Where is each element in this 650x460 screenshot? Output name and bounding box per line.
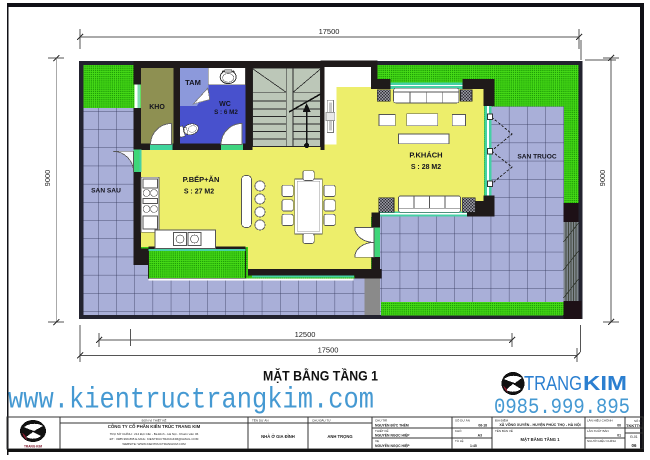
svg-text:NGUYỄN NGỌC HIỆP: NGUYỄN NGỌC HIỆP (375, 443, 410, 448)
svg-text:ĐT : 0985.999.895 E-MAIL: KI: ĐT : 0985.999.895 E-MAIL: KIENTRUCTRANGK… (110, 437, 199, 441)
svg-text:TRỤ SỞ CHÍNH : 214 Đợi Cấn - B: TRỤ SỞ CHÍNH : 214 Đợi Cấn - Ba Đình - H… (110, 431, 199, 436)
svg-text:S : 27 M2: S : 27 M2 (184, 189, 214, 196)
svg-text:TRANG KIM: TRANG KIM (24, 445, 42, 449)
svg-text:A3: A3 (478, 434, 482, 438)
svg-text:Đ-01: Đ-01 (630, 435, 637, 439)
svg-text:NGUYỄN ĐỨC THÊM: NGUYỄN ĐỨC THÊM (375, 423, 409, 428)
svg-text:TÊN DỰ ÁN: TÊN DỰ ÁN (252, 418, 269, 423)
svg-text:06-18: 06-18 (478, 424, 487, 428)
svg-text:P.BẾP+ĂN: P.BẾP+ĂN (183, 174, 220, 184)
svg-text:LẦN HIỆU CHỒNH: LẦN HIỆU CHỒNH (587, 418, 613, 423)
svg-text:VẸ: VẸ (375, 439, 379, 443)
svg-text:XÃ VÕNG XUYÊN - HUYỆN PHÚC THỌ: XÃ VÕNG XUYÊN - HUYỆN PHÚC THỌ - HÀ NỘI (499, 422, 580, 427)
svg-text:ĐỊA ĐIỂM: ĐỊA ĐIỂM (495, 418, 509, 423)
svg-text:KIM: KIM (583, 373, 627, 395)
svg-text:MẶT BẰNG TẦNG 1: MẶT BẰNG TẦNG 1 (263, 367, 378, 384)
svg-text:CÔNG TY CỔ PHẦN KIẾN TRÚC TRAN: CÔNG TY CỔ PHẦN KIẾN TRÚC TRANG KIM (108, 424, 201, 429)
svg-text:www.kientructrangkim.com: www.kientructrangkim.com (8, 383, 374, 417)
svg-text:TAM: TAM (185, 78, 201, 87)
svg-text:CHỦ ĐẦU TƯ: CHỦ ĐẦU TƯ (312, 418, 331, 423)
svg-text:06: 06 (632, 443, 637, 448)
svg-text:KHỔ: KHỔ (455, 428, 462, 433)
svg-text:S : 28 M2: S : 28 M2 (411, 164, 441, 171)
svg-text:TỦ LỆ: TỦ LỆ (455, 438, 464, 443)
svg-text:ANH TRỌNG: ANH TRỌNG (327, 434, 352, 439)
svg-text:S : 6 M2: S : 6 M2 (214, 109, 238, 116)
svg-text:CHỦ TRÌ: CHỦ TRÌ (375, 418, 387, 423)
svg-text:NGUYỄN NGỌC HIỆP: NGUYỄN NGỌC HIỆP (375, 433, 410, 438)
svg-text:NHÀ Ở GIA ĐÌNH: NHÀ Ở GIA ĐÌNH (261, 434, 295, 439)
svg-text:00: 00 (617, 424, 621, 428)
svg-text:P.KHÁCH: P.KHÁCH (409, 151, 442, 160)
svg-text:SAN SAU: SAN SAU (91, 188, 121, 195)
svg-text:12500: 12500 (295, 330, 316, 339)
svg-text:KHO: KHO (149, 104, 165, 111)
svg-text:WC: WC (219, 101, 231, 108)
svg-text:TKKTTC: TKKTTC (626, 423, 642, 428)
svg-text:MẶT BẰNG TẦNG 1: MẶT BẰNG TẦNG 1 (520, 437, 560, 442)
svg-text:17500: 17500 (319, 27, 340, 36)
svg-text:ĐƠN VỊ THIẾT KẾ: ĐƠN VỊ THIẾT KẾ (142, 418, 167, 423)
svg-text:SỐ DỰ ÁN: SỐ DỰ ÁN (455, 418, 470, 423)
svg-text:THIẾT KẾ: THIẾT KẾ (375, 428, 388, 433)
svg-text:9000: 9000 (43, 170, 52, 187)
svg-text:01: 01 (617, 434, 621, 438)
svg-text:LẦN XUẤT BẢN: LẦN XUẤT BẢN (587, 428, 609, 433)
svg-text:17500: 17500 (318, 346, 339, 355)
svg-text:WEBSITE: WWW.KIENTRUCTRANGKIM.: WEBSITE: WWW.KIENTRUCTRANGKIM.COM (122, 442, 186, 446)
svg-text:9000: 9000 (598, 170, 607, 187)
svg-text:TÊN BẢN VẼ: TÊN BẢN VẼ (495, 428, 513, 433)
svg-text:NGƯỜI HIỆU CHỈNH: NGƯỜI HIỆU CHỈNH (587, 438, 616, 443)
svg-text:0985.999.895: 0985.999.895 (494, 395, 630, 420)
svg-text:1:45: 1:45 (470, 444, 477, 448)
svg-text:SAN TRUOC: SAN TRUOC (517, 154, 556, 161)
svg-text:TRANG: TRANG (524, 373, 582, 395)
